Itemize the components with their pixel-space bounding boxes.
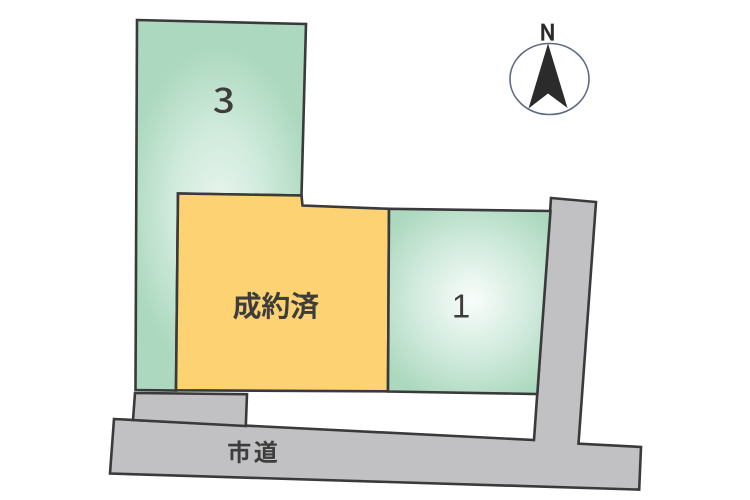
- svg-text:1: 1: [452, 287, 470, 324]
